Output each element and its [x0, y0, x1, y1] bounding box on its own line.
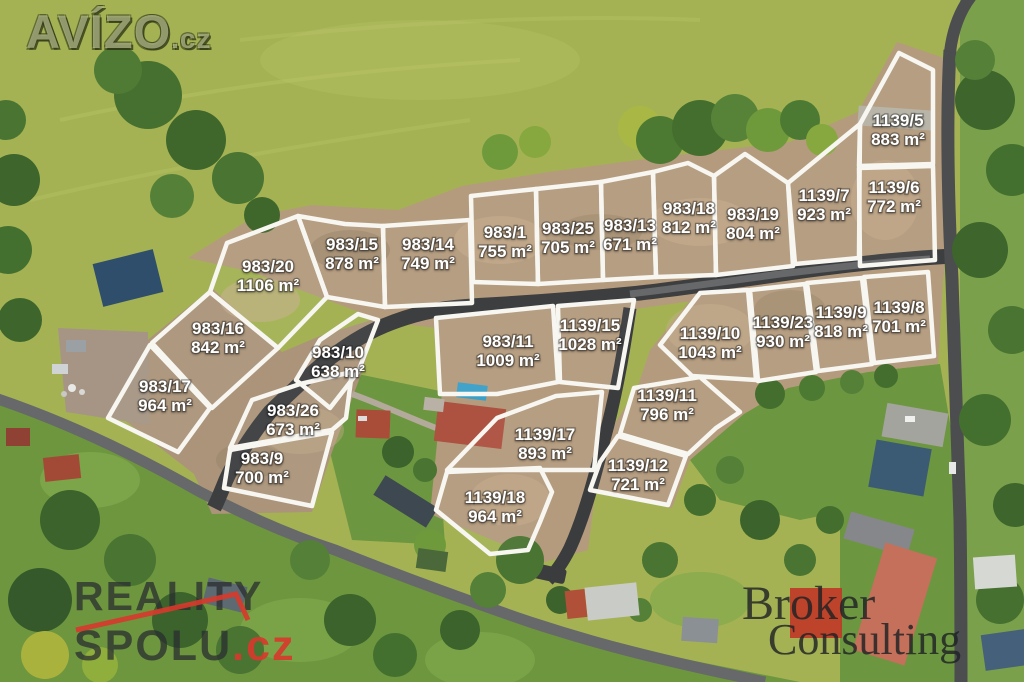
reality-text: REALITY — [74, 576, 294, 617]
plot-label-983/13: 983/13671 m² — [603, 216, 657, 254]
plot-label-983/1: 983/1755 m² — [478, 223, 532, 261]
plot-label-983/25: 983/25705 m² — [541, 219, 595, 257]
plot-label-1139/8: 1139/8701 m² — [872, 298, 926, 336]
car — [949, 462, 956, 474]
aerial-photo-land-plots: 983/201106 m²983/15878 m²983/14749 m²983… — [0, 0, 1024, 682]
plot-label-983/16: 983/16842 m² — [191, 319, 245, 357]
garage — [423, 397, 444, 412]
warehouse-white — [584, 582, 639, 620]
plot-label-1139/11: 1139/11796 m² — [637, 386, 697, 424]
car — [358, 416, 367, 421]
house-blue-se — [981, 629, 1024, 671]
house-red-sw — [43, 454, 81, 482]
plot-label-1139/5: 1139/5883 m² — [871, 111, 925, 149]
house-white-se — [973, 555, 1017, 590]
avizo-watermark: AVÍZO.cz — [26, 4, 212, 59]
house-red-sw2 — [6, 428, 30, 446]
plot-label-983/11: 983/111009 m² — [476, 332, 540, 370]
plot-label-983/20: 983/201106 m² — [237, 257, 300, 295]
shed-green-roof — [416, 548, 448, 572]
reality-spolu-tld: .cz — [232, 622, 295, 670]
plot-label-983/9: 983/9700 m² — [235, 449, 289, 487]
plot-label-983/17: 983/17964 m² — [138, 377, 192, 415]
broker-consulting-watermark: Broker Consulting — [738, 580, 978, 675]
reality-spolu-watermark: REALITY SPOLU.cz — [74, 576, 294, 680]
plot-label-1139/9: 1139/9818 m² — [814, 303, 868, 341]
house-bottom-center — [681, 617, 719, 643]
shed — [52, 364, 68, 374]
plot-label-983/14: 983/14749 m² — [401, 235, 455, 273]
plot-label-983/19: 983/19804 m² — [726, 205, 780, 243]
plot-label-983/26: 983/26673 m² — [266, 401, 320, 439]
plot-label-1139/18: 1139/18964 m² — [465, 488, 526, 526]
shed — [66, 340, 86, 352]
warehouse-red-part — [565, 589, 588, 619]
house-red-roof-mid — [356, 409, 391, 438]
plot-label-1139/23: 1139/23930 m² — [753, 313, 814, 351]
house-blue-hip-east — [868, 440, 931, 497]
plot-label-1139/10: 1139/101043 m² — [678, 324, 742, 362]
car — [905, 416, 915, 422]
plot-label-1139/7: 1139/7923 m² — [797, 186, 851, 224]
avizo-logo-text: AVÍZO — [26, 5, 171, 58]
plot-label-1139/6: 1139/6772 m² — [867, 178, 921, 216]
plot-label-983/15: 983/15878 m² — [325, 235, 379, 273]
avizo-logo-tld: .cz — [171, 23, 211, 54]
plot-label-983/18: 983/18812 m² — [662, 199, 716, 237]
consulting-text: Consulting — [768, 618, 961, 662]
plot-label-1139/15: 1139/151028 m² — [558, 316, 622, 354]
plot-label-983/10: 983/10638 m² — [311, 343, 365, 381]
plot-label-1139/12: 1139/12721 m² — [608, 456, 669, 494]
spolu-text: SPOLU.cz — [74, 625, 294, 668]
plot-label-1139/17: 1139/17893 m² — [515, 425, 576, 463]
